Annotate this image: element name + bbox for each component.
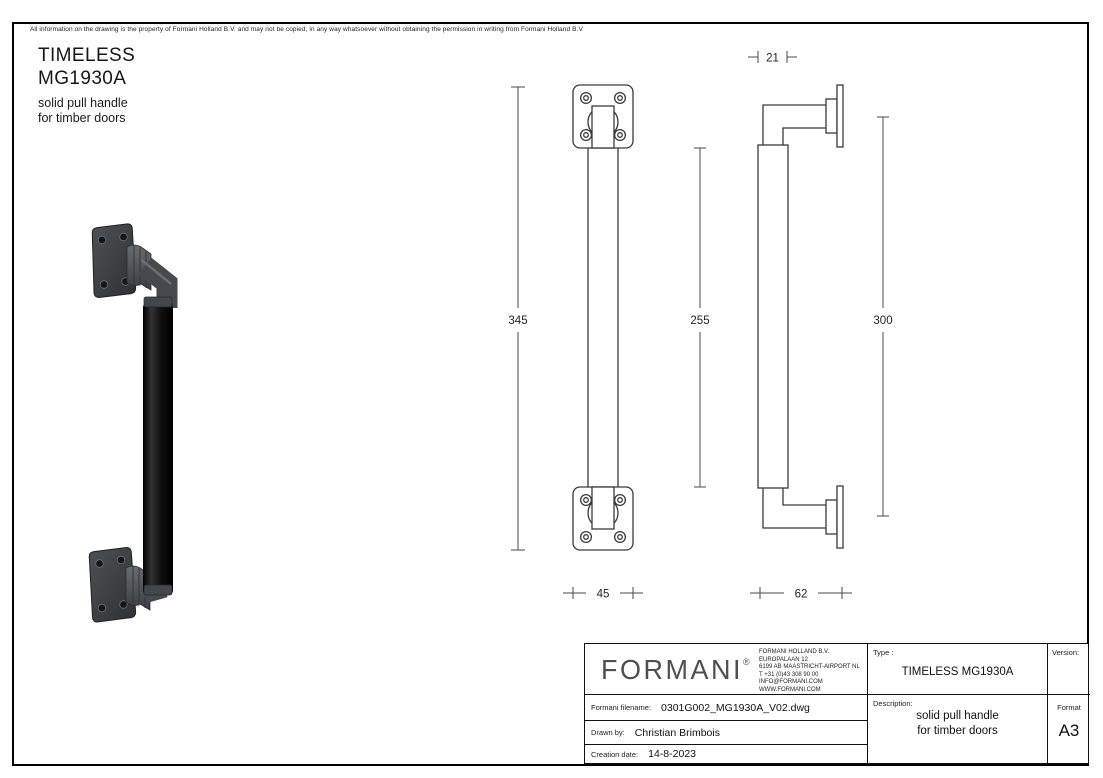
screw-hole-icon xyxy=(581,130,592,141)
dim-fixing-centers-label: 300 xyxy=(873,315,892,327)
contact-line: EUROPALAAN 12 xyxy=(759,657,860,665)
title-block-logo-cell: FORMANI® FORMANI HOLLAND B.V. EUROPALAAN… xyxy=(585,644,868,695)
title-block-version-cell: Version: xyxy=(1048,644,1090,695)
creation-date-label: Creation date: xyxy=(591,750,638,759)
dim-fixing-centers: 300 xyxy=(873,117,892,516)
dim-grip-length-label: 255 xyxy=(690,315,709,327)
side-top-neck-flange xyxy=(826,99,837,133)
dim-rosette-width-label: 45 xyxy=(597,589,610,601)
description-label: Description: xyxy=(873,699,913,708)
dim-projection-label: 62 xyxy=(795,589,808,601)
screw-hole-icon xyxy=(615,130,626,141)
render-grip-bar xyxy=(143,304,173,594)
front-view-drawing xyxy=(573,85,633,550)
side-top-arm xyxy=(763,105,827,145)
render-grip-top-collar xyxy=(144,297,172,307)
drawing-sheet: All information on the drawing is the pr… xyxy=(0,0,1103,778)
screw-hole-icon xyxy=(581,532,592,543)
front-bottom-rosette xyxy=(573,487,633,550)
dim-grip-diameter: 21 xyxy=(748,51,797,65)
type-label: Type : xyxy=(873,648,893,657)
side-view-drawing xyxy=(758,85,843,548)
side-bottom-wall-plate xyxy=(837,486,843,548)
title-block-description-cell: Description: solid pull handle for timbe… xyxy=(868,695,1048,764)
dim-rosette-width: 45 xyxy=(563,587,643,601)
dim-total-height: 345 xyxy=(508,87,527,550)
dim-projection: 62 xyxy=(750,587,852,601)
company-contact: FORMANI HOLLAND B.V. EUROPALAAN 12 6199 … xyxy=(759,649,860,695)
render-3d xyxy=(89,224,173,622)
contact-line: INFO@FORMANI.COM xyxy=(759,679,860,687)
side-bottom-neck-flange xyxy=(826,500,837,534)
screw-hole-icon xyxy=(581,495,592,506)
dim-grip-diameter-label: 21 xyxy=(766,53,779,65)
screw-hole-icon xyxy=(98,236,106,244)
front-top-rosette xyxy=(573,85,633,148)
screw-hole-icon xyxy=(120,233,128,241)
title-block-type-cell: Type : TIMELESS MG1930A xyxy=(868,644,1048,695)
type-value: TIMELESS MG1930A xyxy=(868,666,1047,678)
title-block: FORMANI® FORMANI HOLLAND B.V. EUROPALAAN… xyxy=(584,643,1089,764)
contact-line: 6199 AB MAASTRICHT-AIRPORT NL xyxy=(759,664,860,672)
registered-mark-icon: ® xyxy=(743,657,750,667)
screw-hole-icon xyxy=(117,556,125,564)
format-label: Format xyxy=(1048,703,1090,712)
creation-date-value: 14-8-2023 xyxy=(648,748,696,760)
contact-line: FORMANI HOLLAND B.V. xyxy=(759,649,860,657)
title-block-drawnby-row: Drawn by: Christian Brimbois xyxy=(585,721,868,745)
description-line1: solid pull handle xyxy=(868,709,1047,724)
screw-hole-icon xyxy=(581,93,592,104)
dim-total-height-label: 345 xyxy=(508,315,527,327)
contact-line: T +31 (0)43 308 90 00 xyxy=(759,672,860,680)
filename-value: 0301G002_MG1930A_V02.dwg xyxy=(661,702,810,714)
screw-hole-icon xyxy=(98,604,106,612)
screw-hole-icon xyxy=(615,93,626,104)
description-line2: for timber doors xyxy=(868,724,1047,739)
version-label: Version: xyxy=(1052,648,1079,657)
dim-grip-length: 255 xyxy=(690,148,709,487)
screw-hole-icon xyxy=(615,532,626,543)
contact-line: WWW.FORMANI.COM xyxy=(759,687,860,695)
format-value: A3 xyxy=(1048,721,1090,741)
title-block-filename-row: Formani filename: 0301G002_MG1930A_V02.d… xyxy=(585,695,868,721)
side-grip-bar xyxy=(758,145,788,488)
drawn-by-label: Drawn by: xyxy=(591,728,625,737)
title-block-format-cell: Format A3 xyxy=(1048,695,1090,764)
formani-logo: FORMANI® xyxy=(601,655,750,687)
screw-hole-icon xyxy=(96,560,104,568)
front-grip-bar xyxy=(588,148,618,487)
screw-hole-icon xyxy=(100,281,108,289)
filename-label: Formani filename: xyxy=(591,703,651,712)
side-top-wall-plate xyxy=(837,85,843,147)
title-block-creation-row: Creation date: 14-8-2023 xyxy=(585,745,868,764)
drawn-by-value: Christian Brimbois xyxy=(635,727,720,739)
side-bottom-arm xyxy=(763,488,827,528)
render-grip-bottom-collar xyxy=(144,585,172,595)
screw-hole-icon xyxy=(615,495,626,506)
